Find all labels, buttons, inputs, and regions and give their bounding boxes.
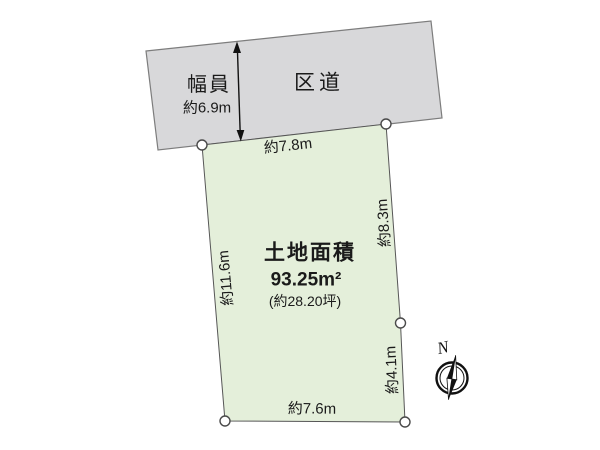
road-width-title: 幅員 bbox=[187, 75, 231, 95]
dimension-bottom: 約7.6m bbox=[288, 401, 336, 416]
dimension-right-upper: 約8.3m bbox=[375, 198, 393, 247]
vertex-marker bbox=[197, 140, 207, 150]
compass-north-label: N bbox=[434, 337, 452, 358]
dimension-right-lower: 約4.1m bbox=[383, 345, 401, 394]
vertex-marker bbox=[396, 318, 406, 328]
plot-area-title: 土地面積 bbox=[264, 243, 356, 264]
diagram-shapes: N bbox=[0, 0, 600, 450]
vertex-marker bbox=[400, 417, 410, 427]
vertex-marker bbox=[220, 416, 230, 426]
plot-area-sqm: 93.25m² bbox=[271, 271, 342, 290]
vertex-marker bbox=[381, 119, 391, 129]
road-name-label: 区道 bbox=[294, 73, 344, 94]
plot-area-tsubo: (約28.20坪) bbox=[269, 294, 341, 308]
compass: N bbox=[434, 337, 467, 401]
land-plot-diagram: N 区道 幅員 約6.9m 土地面積 93.25m² (約28.20坪) 約7.… bbox=[0, 0, 600, 450]
road-width-value: 約6.9m bbox=[183, 101, 231, 116]
